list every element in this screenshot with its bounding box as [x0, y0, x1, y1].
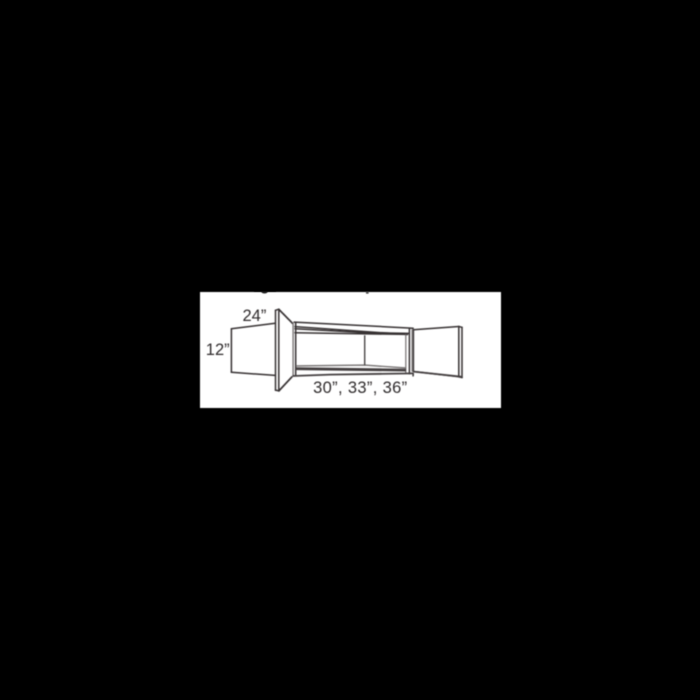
- svg-text:12”: 12”: [206, 341, 230, 359]
- svg-text:30”, 33”, 36”: 30”, 33”, 36”: [313, 379, 407, 397]
- svg-text:24”: 24”: [243, 307, 267, 325]
